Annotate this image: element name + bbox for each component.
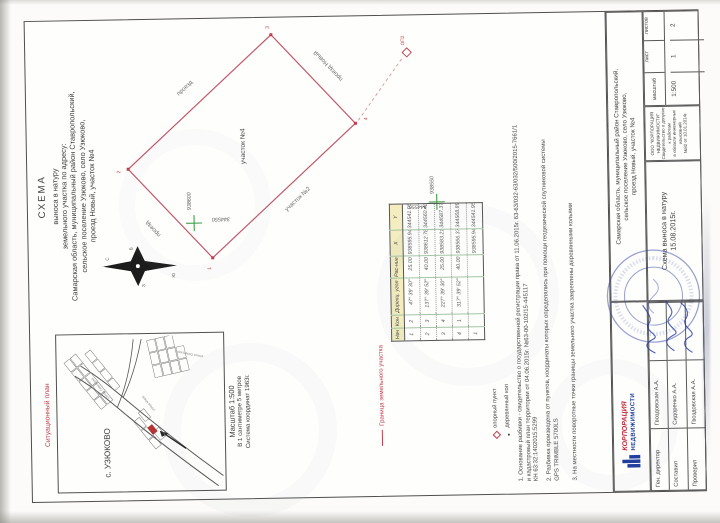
column-header: X [390, 230, 403, 256]
grid-cross-icon [186, 215, 202, 231]
road-arrow-icon [166, 434, 186, 448]
edge-label-ne: проезд [176, 79, 194, 97]
org-line: №82 от 10.01.2014г. [682, 106, 688, 159]
cell: 40.00 [451, 255, 467, 277]
scan-edge [0, 0, 720, 5]
cell: 344587.37 [434, 203, 450, 229]
logo-buildings-icon [619, 453, 641, 468]
cell: 344541.95 [402, 204, 418, 230]
legend-wooden-stake: деревянный кол [504, 384, 512, 438]
cell: 25.00 [435, 255, 451, 277]
cell: 227° 39′ 30″ [436, 277, 453, 314]
cell [468, 277, 485, 314]
column-header: Y [389, 204, 402, 230]
cell: 1 [452, 314, 468, 327]
legend-label: опорный пункт [492, 388, 500, 428]
vertex-number: 4 [363, 117, 369, 120]
column-header: Дирекц. угол [391, 278, 405, 315]
cell: 344560.43 [418, 203, 434, 229]
logo-text: НЕДВИЖИМОСТИ [630, 393, 639, 451]
compass-letter: З [141, 284, 146, 287]
legend-control-point: опорный пункт [492, 388, 500, 438]
company-logo: КОРПОРАЦИЯ НЕДВИЖИМОСТИ [618, 393, 641, 469]
cell: 938583.21 [435, 229, 451, 255]
scan-edge [0, 511, 720, 523]
compass-rose-icon: С Ю В З [101, 243, 180, 288]
scan-edge [0, 0, 11, 523]
cell: 1 [405, 328, 421, 341]
cell: 344568.89 [450, 203, 466, 229]
boundary-line-icon [382, 430, 383, 446]
signature-role: Ген. директор [651, 428, 670, 490]
parcel-label: участок №4 [239, 128, 247, 164]
stake-dot-icon [507, 434, 509, 436]
scale-value: 1:500 [671, 73, 680, 105]
cell: 2 [420, 327, 436, 340]
block-grid [147, 335, 190, 378]
survey-scheme-sheet: 1 2 3 4 проезд проезд проезд Новый участ… [24, 9, 707, 503]
street-label: улица Советская [177, 350, 204, 359]
table-row: 1938595.94344541.95 [466, 203, 484, 340]
cell: 137° 39′ 52″ [420, 277, 437, 314]
column-header: Нач [392, 328, 405, 341]
cell: 2 [404, 315, 420, 328]
signature-name: Гвоздовская А.А. [650, 360, 669, 428]
organization-cell: ООО "КОРПОРАЦИЯ НЕДВИЖИМОСТИ" Свидетельс… [644, 105, 701, 161]
vertex-number: 2 [116, 170, 122, 173]
vertex-number: 1 [207, 267, 213, 270]
cell: 938595.94 [467, 229, 483, 255]
sheets-total-value: 2 [670, 10, 705, 41]
scan-artifact [703, 195, 710, 460]
cell: 938566.37 [451, 229, 467, 255]
scale-sheet-grid: масштаб лист листов 1:500 1 2 [643, 10, 701, 106]
sheet-value: 1 [670, 40, 705, 73]
edge-label-se: проезд Новый [312, 49, 344, 82]
cell [468, 314, 484, 327]
map-scale-note: Масштаб 1:500 В 1 сантиметре 5 метров Си… [226, 326, 253, 496]
street-label: улица Мира [141, 395, 156, 412]
cell: 4 [452, 327, 468, 340]
compass-letter: С [105, 257, 110, 261]
situational-plan-map: улица Советская улица Мира улица Советск… [55, 332, 227, 494]
compass-letter: В [129, 247, 134, 250]
edge-label-sw: участок №2 [283, 185, 312, 213]
scheme-title: СХЕМА выноса в натуру земельного участка… [34, 31, 100, 362]
signature [643, 305, 656, 353]
grid-x-label: 938550 [429, 176, 435, 194]
signature-role: Составил [669, 428, 688, 490]
column-header: Рас-ние [390, 256, 403, 278]
coordinates-table: Нач Кон Дирекц. угол Рас-ние X Y 1247° 3… [389, 202, 485, 342]
legend-label: деревянный кол [504, 384, 512, 428]
control-point-icon [402, 48, 411, 57]
block-grid [64, 345, 124, 409]
cell: 317° 39′ 52″ [452, 277, 469, 314]
cell: 4 [436, 314, 452, 327]
grid-x-label: 938600 [187, 192, 193, 210]
grid-y-label: 344550 [212, 216, 230, 222]
cell [467, 255, 483, 277]
cell: 3 [420, 314, 436, 327]
cell: 938612.78 [419, 229, 435, 255]
org-line: Свидетельство о допуске к работам [660, 107, 672, 160]
org-line: в области инженерных изысканий [671, 107, 683, 160]
vertex-number: 3 [265, 26, 271, 29]
cell: 344541.95 [466, 203, 482, 229]
round-seal-stamp [595, 222, 709, 364]
compass-letter: Ю [171, 272, 176, 277]
cell: 1 [468, 327, 484, 340]
edge-label-nw: проезд [144, 219, 162, 237]
control-point-label: ОП2 [400, 35, 406, 45]
sheets-total-label: листов [644, 11, 665, 41]
cell: 47° 39′ 30″ [404, 278, 421, 315]
scale-label: масштаб [651, 73, 658, 105]
legend-label: Граница земельного участка [377, 345, 386, 426]
cell: 25.00 [403, 256, 419, 278]
cell: 40.00 [419, 255, 435, 277]
column-header: Кон [391, 315, 404, 328]
sheet-label: лист [644, 41, 665, 73]
org-line: ООО "КОРПОРАЦИЯ НЕДВИЖИМОСТИ" [649, 107, 661, 160]
signature-name: Сидоренко А.А. [668, 360, 687, 428]
settlement-label: с. УЗЮКОВО [103, 428, 113, 478]
cell: 938595.94 [403, 230, 419, 256]
cell: 3 [436, 327, 452, 340]
title-block: КОРПОРАЦИЯ НЕДВИЖИМОСТИ Самарская област… [605, 10, 707, 492]
tie-line [357, 56, 404, 120]
